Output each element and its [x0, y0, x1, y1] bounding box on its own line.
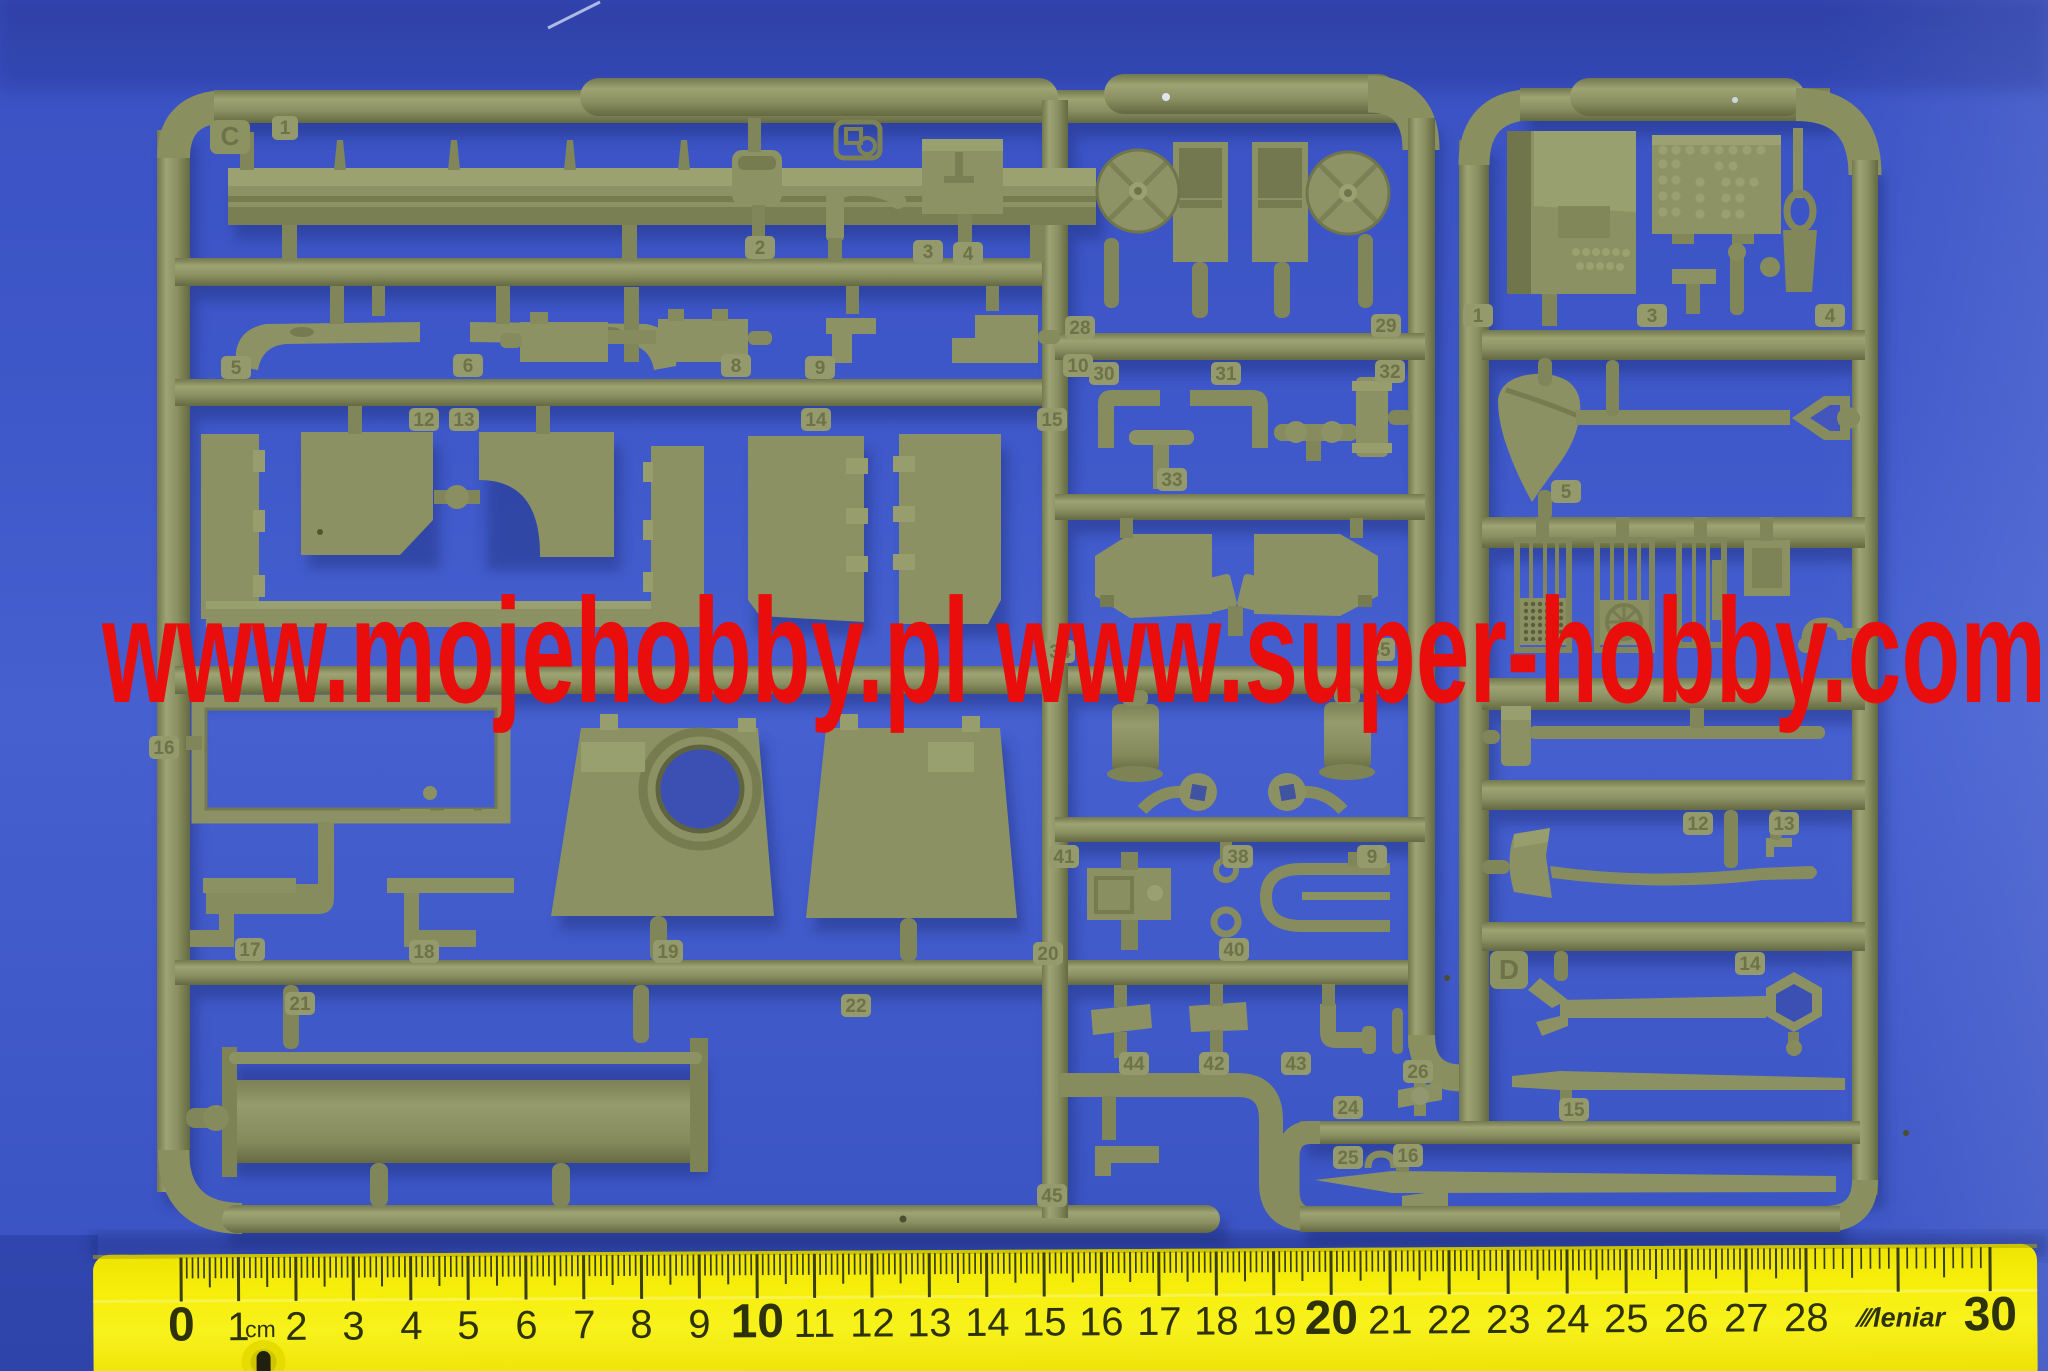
- svg-text:42: 42: [1203, 1054, 1224, 1075]
- svg-text:25: 25: [1604, 1297, 1649, 1341]
- svg-text:33: 33: [1161, 470, 1182, 491]
- svg-text:7: 7: [573, 1303, 596, 1347]
- svg-text:3: 3: [342, 1304, 365, 1348]
- svg-text:30: 30: [1963, 1288, 2017, 1341]
- svg-text:15: 15: [1041, 410, 1063, 431]
- svg-text:26: 26: [1664, 1297, 1709, 1341]
- svg-text:15: 15: [1022, 1300, 1067, 1344]
- svg-text:22: 22: [845, 996, 866, 1017]
- svg-text:22: 22: [1427, 1298, 1472, 1342]
- svg-text:8: 8: [731, 356, 742, 377]
- svg-text:27: 27: [1724, 1296, 1769, 1340]
- svg-text:28: 28: [1069, 318, 1090, 339]
- svg-text:21: 21: [1368, 1298, 1413, 1342]
- svg-text:12: 12: [850, 1301, 895, 1345]
- svg-text:20: 20: [1304, 1292, 1358, 1345]
- svg-text:29: 29: [1375, 316, 1396, 337]
- svg-text:19: 19: [657, 942, 678, 963]
- svg-text:10: 10: [731, 1295, 785, 1348]
- svg-text:32: 32: [1379, 362, 1400, 383]
- svg-text:14: 14: [805, 410, 827, 431]
- svg-text:31: 31: [1215, 364, 1237, 385]
- svg-text:11: 11: [793, 1302, 835, 1346]
- svg-text:15: 15: [1563, 1100, 1585, 1121]
- svg-text:13: 13: [453, 410, 474, 431]
- svg-text:4: 4: [400, 1304, 423, 1348]
- svg-text:18: 18: [1194, 1299, 1239, 1343]
- svg-text:19: 19: [1252, 1299, 1297, 1343]
- svg-text:5: 5: [457, 1304, 480, 1348]
- svg-text:20: 20: [1037, 944, 1058, 965]
- svg-text:41: 41: [1053, 847, 1075, 868]
- svg-text:2: 2: [285, 1305, 308, 1349]
- svg-text:9: 9: [688, 1302, 711, 1346]
- svg-text:∕∕∕leniar: ∕∕∕leniar: [1854, 1302, 1946, 1333]
- svg-text:26: 26: [1407, 1062, 1428, 1083]
- svg-text:6: 6: [463, 356, 474, 377]
- svg-text:4: 4: [963, 244, 974, 265]
- svg-text:16: 16: [1397, 1146, 1418, 1167]
- svg-text:C: C: [221, 121, 240, 151]
- svg-text:38: 38: [1227, 847, 1248, 868]
- svg-text:18: 18: [413, 942, 434, 963]
- svg-text:5: 5: [231, 358, 242, 379]
- svg-text:16: 16: [153, 738, 174, 759]
- svg-text:2: 2: [755, 238, 766, 259]
- svg-text:4: 4: [1825, 306, 1836, 327]
- svg-text:45: 45: [1041, 1186, 1063, 1207]
- svg-text:D: D: [1499, 954, 1519, 985]
- svg-text:17: 17: [239, 940, 260, 961]
- svg-text:17: 17: [1137, 1300, 1182, 1344]
- svg-text:30: 30: [1093, 364, 1114, 385]
- svg-text:8: 8: [630, 1303, 653, 1347]
- svg-text:14: 14: [1739, 954, 1761, 975]
- svg-text:www.mojehobby.pl www.super-hob: www.mojehobby.pl www.super-hobby.com: [101, 568, 2046, 734]
- svg-text:1: 1: [280, 118, 291, 139]
- svg-text:9: 9: [815, 358, 826, 379]
- svg-text:25: 25: [1337, 1148, 1359, 1169]
- svg-text:14: 14: [965, 1301, 1010, 1345]
- svg-text:23: 23: [1486, 1298, 1531, 1342]
- svg-text:13: 13: [907, 1301, 952, 1345]
- svg-text:12: 12: [1687, 814, 1708, 835]
- svg-text:9: 9: [1367, 847, 1378, 868]
- svg-text:3: 3: [923, 242, 934, 263]
- svg-text:44: 44: [1123, 1054, 1145, 1075]
- svg-text:43: 43: [1285, 1054, 1306, 1075]
- svg-text:10: 10: [1067, 356, 1088, 377]
- svg-text:0: 0: [168, 1298, 195, 1351]
- svg-text:24: 24: [1337, 1098, 1359, 1119]
- svg-text:12: 12: [413, 410, 434, 431]
- svg-text:6: 6: [515, 1303, 538, 1347]
- svg-text:24: 24: [1545, 1297, 1590, 1341]
- svg-text:1: 1: [1473, 306, 1484, 327]
- svg-text:28: 28: [1784, 1296, 1829, 1340]
- svg-text:40: 40: [1223, 940, 1244, 961]
- svg-text:21: 21: [289, 994, 311, 1015]
- svg-text:cm: cm: [245, 1316, 276, 1342]
- svg-text:16: 16: [1079, 1300, 1124, 1344]
- svg-text:13: 13: [1773, 814, 1794, 835]
- svg-text:3: 3: [1647, 306, 1658, 327]
- svg-text:5: 5: [1561, 482, 1572, 503]
